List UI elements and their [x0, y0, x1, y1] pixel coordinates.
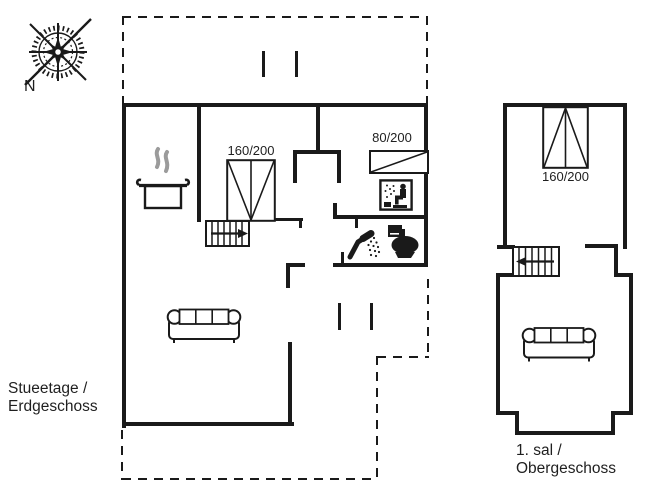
terrace-boundary	[122, 16, 428, 18]
sofa-icon	[520, 325, 598, 363]
wall-segment	[515, 431, 615, 435]
terrace-boundary	[426, 16, 428, 104]
wall-segment	[288, 342, 292, 426]
ground-floor-label: Stueetage / Erdgeschoss	[8, 380, 98, 417]
door-opening-mark	[370, 303, 373, 330]
wall-segment	[503, 103, 507, 249]
wall-segment	[333, 203, 337, 215]
wall-segment	[623, 103, 627, 249]
stairs-icon	[205, 220, 250, 247]
wall-segment	[293, 150, 297, 183]
wall-segment	[333, 215, 428, 219]
terrace-boundary	[122, 478, 378, 480]
cooking-pot-icon	[134, 146, 192, 212]
wall-segment	[424, 103, 428, 267]
terrace-boundary	[121, 430, 123, 480]
door-opening-mark	[338, 303, 341, 330]
upper-floor-label-line1: 1. sal /	[516, 442, 616, 460]
wall-segment	[496, 273, 500, 415]
toilet-icon	[383, 224, 421, 260]
bed-size-label: 160/200	[224, 143, 278, 158]
sauna-icon	[379, 179, 413, 211]
double-bed-icon	[542, 106, 589, 169]
wall-segment	[122, 422, 294, 426]
stairs-icon	[512, 246, 560, 277]
wall-segment	[293, 150, 341, 154]
terrace-boundary	[427, 279, 429, 357]
north-label: N	[24, 78, 36, 96]
double-bed-icon	[226, 159, 276, 222]
steam-icon	[157, 149, 168, 171]
ground-floor-label-line1: Stueetage /	[8, 380, 98, 398]
upper-floor-label: 1. sal / Obergeschoss	[516, 442, 616, 479]
wall-segment	[122, 103, 428, 107]
wall-segment	[611, 411, 633, 415]
shower-icon	[345, 225, 381, 261]
wall-segment	[316, 103, 320, 152]
upper-floor-label-line2: Obergeschoss	[516, 460, 616, 478]
wall-segment	[333, 263, 428, 267]
wall-segment	[122, 103, 126, 428]
ground-floor-label-line2: Erdgeschoss	[8, 398, 98, 416]
wall-segment	[629, 273, 633, 415]
wall-segment	[286, 263, 290, 288]
wall-segment	[341, 252, 344, 263]
terrace-boundary	[376, 356, 378, 480]
bed-size-label: 160/200	[539, 169, 592, 184]
terrace-boundary	[377, 356, 429, 358]
wall-segment	[299, 221, 302, 228]
door-opening-mark	[295, 51, 298, 77]
wall-segment	[197, 103, 201, 222]
wall-segment	[337, 150, 341, 183]
terrace-boundary	[122, 16, 124, 104]
single-bed-icon	[369, 150, 429, 174]
door-opening-mark	[262, 51, 265, 77]
bed-size-label: 80/200	[364, 130, 420, 145]
floor-plan-page: N 160/200	[0, 0, 650, 487]
sofa-icon	[165, 307, 243, 344]
